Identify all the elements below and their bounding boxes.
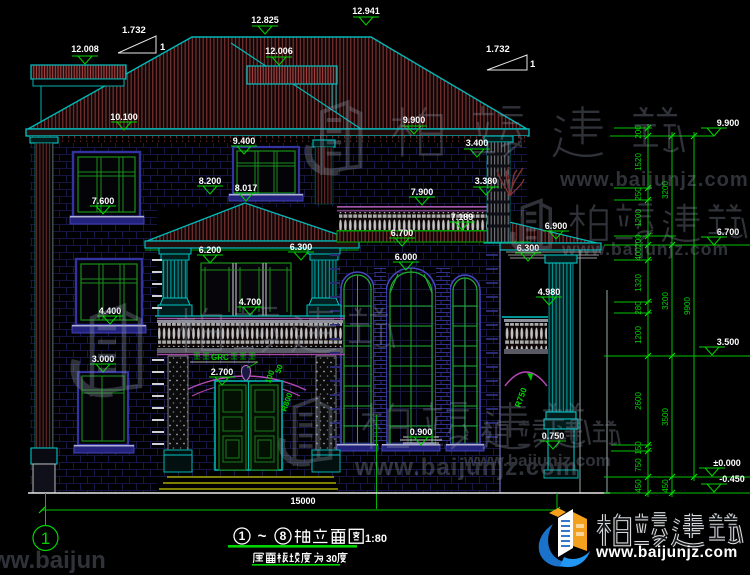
svg-text:4.980: 4.980 [538,287,561,297]
svg-text:3200: 3200 [661,292,670,310]
svg-text:2600: 2600 [634,392,643,410]
svg-text:9.400: 9.400 [233,136,256,146]
svg-text:9900: 9900 [683,297,692,315]
svg-text:3500: 3500 [661,408,670,426]
svg-text:±0.000: ±0.000 [713,458,740,468]
svg-text:7.900: 7.900 [411,187,434,197]
svg-text:1.732: 1.732 [122,25,146,36]
svg-text:-0.450: -0.450 [719,474,745,484]
svg-text:7.600: 7.600 [92,196,115,206]
svg-text:1: 1 [160,42,166,53]
svg-text:6.300: 6.300 [290,242,313,252]
svg-text:1.732: 1.732 [486,44,510,55]
svg-text:1:80: 1:80 [365,533,387,545]
svg-text:6.900: 6.900 [545,221,568,231]
svg-text:10.100: 10.100 [110,112,138,122]
svg-text:~: ~ [258,528,267,545]
svg-text:450: 450 [661,479,670,493]
svg-text:280: 280 [634,301,643,315]
svg-text:12.008: 12.008 [71,44,99,54]
svg-text:200: 200 [634,125,643,139]
svg-text:30: 30 [326,554,338,565]
svg-text:1: 1 [530,59,536,70]
svg-text:750: 750 [634,458,643,472]
svg-text:450: 450 [634,479,643,493]
svg-text:1320: 1320 [634,274,643,292]
svg-text:8.200: 8.200 [199,176,222,186]
svg-text:8.017: 8.017 [235,183,258,193]
svg-text:www.baijunjz.com: www.baijunjz.com [463,451,611,470]
svg-text:1: 1 [239,529,246,543]
svg-text:ww.baijun: ww.baijun [0,547,106,574]
svg-text:2.700: 2.700 [211,367,234,377]
svg-text:7.189: 7.189 [451,212,474,222]
svg-text:3.500: 3.500 [717,337,740,347]
svg-text:3.380: 3.380 [475,176,498,186]
svg-text:12.006: 12.006 [265,46,293,56]
svg-text:1200: 1200 [634,326,643,344]
svg-text:GRC: GRC [211,353,229,362]
svg-text:9.900: 9.900 [717,118,740,128]
svg-text:6.200: 6.200 [199,245,222,255]
svg-text:12.825: 12.825 [251,15,279,25]
svg-text:www.baijunjz.com: www.baijunjz.com [559,169,749,191]
svg-text:1: 1 [41,529,50,548]
svg-text:15000: 15000 [290,496,315,506]
svg-text:6.700: 6.700 [391,228,414,238]
svg-text:3.400: 3.400 [466,138,489,148]
svg-text:8: 8 [280,529,287,543]
svg-text:6.000: 6.000 [395,252,418,262]
svg-text:150: 150 [634,441,643,455]
svg-text:www.baijunjz.com: www.baijunjz.com [561,239,729,259]
svg-text:4.700: 4.700 [239,297,262,307]
svg-text:www.baijunjz.com: www.baijunjz.com [595,544,738,561]
svg-text:12.941: 12.941 [352,6,380,16]
